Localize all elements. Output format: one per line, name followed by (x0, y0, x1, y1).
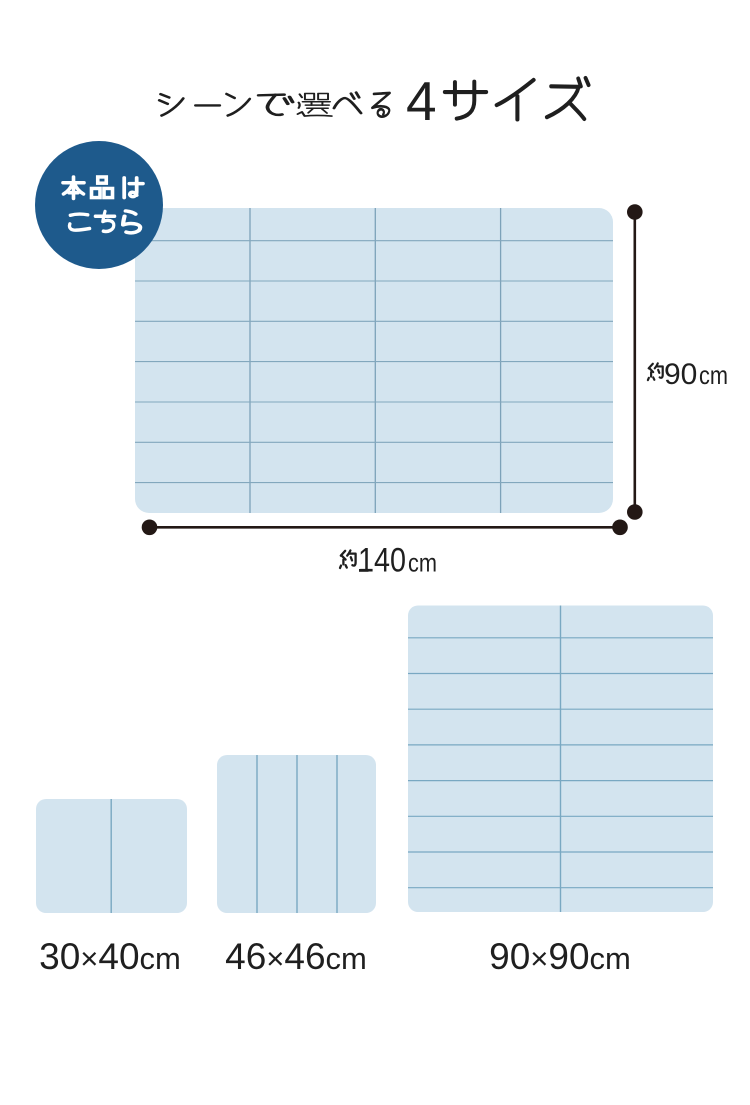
svg-text:cm: cm (699, 360, 728, 390)
svg-text:46×46cm: 46×46cm (225, 936, 367, 977)
svg-text:90×90cm: 90×90cm (489, 936, 631, 977)
svg-text:140: 140 (358, 542, 406, 580)
svg-text:90: 90 (664, 358, 697, 391)
svg-text:cm: cm (408, 548, 437, 578)
svg-text:4: 4 (406, 70, 437, 132)
svg-text:30×40cm: 30×40cm (39, 936, 181, 977)
